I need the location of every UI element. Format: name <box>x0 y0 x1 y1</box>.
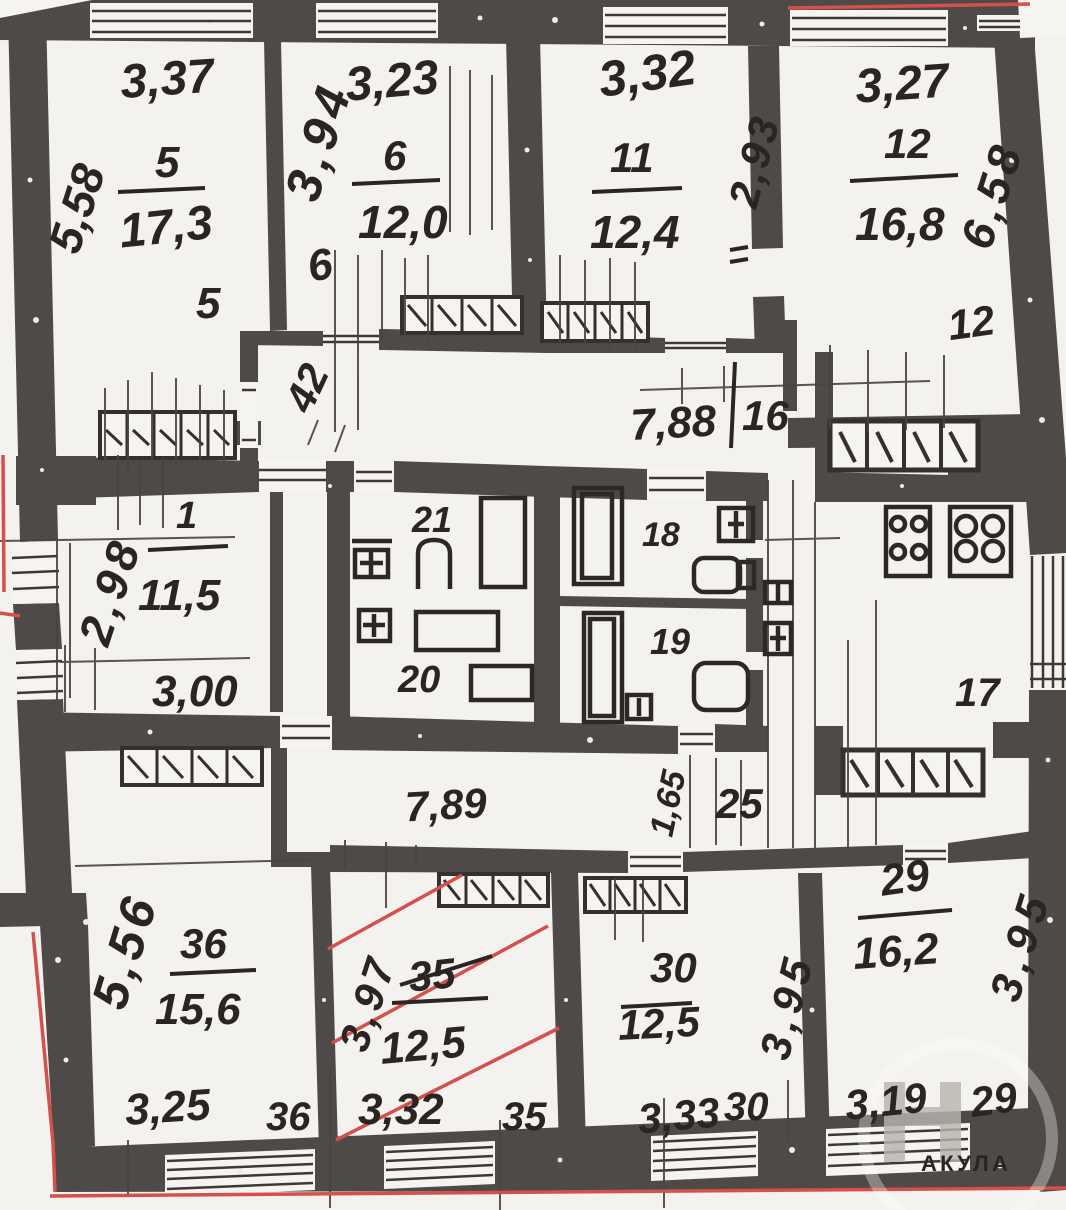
svg-text:15,6: 15,6 <box>155 985 241 1034</box>
svg-text:12: 12 <box>945 296 998 349</box>
svg-text:7,88: 7,88 <box>629 397 718 450</box>
svg-text:17,3: 17,3 <box>117 196 216 259</box>
svg-text:16,8: 16,8 <box>855 198 945 250</box>
svg-text:17: 17 <box>955 671 1001 715</box>
svg-text:36: 36 <box>266 1095 311 1139</box>
svg-text:3,25: 3,25 <box>123 1080 212 1135</box>
svg-text:35: 35 <box>502 1095 547 1139</box>
svg-text:3,27: 3,27 <box>854 54 953 114</box>
svg-text:АКУЛА: АКУЛА <box>921 1151 1011 1176</box>
svg-text:36: 36 <box>180 920 227 967</box>
svg-text:16: 16 <box>742 392 789 439</box>
svg-text:3,00: 3,00 <box>152 667 238 716</box>
svg-text:30: 30 <box>724 1085 769 1129</box>
svg-text:3,32: 3,32 <box>358 1085 444 1134</box>
svg-text:11,5: 11,5 <box>138 571 221 620</box>
svg-text:12,0: 12,0 <box>358 196 448 248</box>
svg-text:5: 5 <box>155 138 180 187</box>
svg-text:29: 29 <box>876 850 933 906</box>
svg-text:12,5: 12,5 <box>378 1018 468 1074</box>
svg-text:6: 6 <box>383 132 407 179</box>
svg-text:3,33: 3,33 <box>636 1088 722 1142</box>
svg-text:3,19: 3,19 <box>843 1074 930 1129</box>
svg-text:16,2: 16,2 <box>851 924 940 979</box>
svg-text:12: 12 <box>884 120 931 167</box>
svg-text:11: 11 <box>610 134 654 181</box>
svg-text:30: 30 <box>650 944 697 991</box>
svg-text:29: 29 <box>966 1073 1020 1126</box>
svg-text:20: 20 <box>397 659 440 701</box>
svg-text:19: 19 <box>650 621 690 662</box>
svg-text:1: 1 <box>176 495 197 537</box>
svg-text:12,4: 12,4 <box>590 206 680 258</box>
svg-text:25: 25 <box>715 780 763 827</box>
svg-text:18: 18 <box>642 516 680 554</box>
svg-text:7,89: 7,89 <box>404 779 489 830</box>
svg-text:3,37: 3,37 <box>119 50 218 110</box>
svg-text:21: 21 <box>411 499 452 540</box>
svg-text:5: 5 <box>196 279 221 328</box>
